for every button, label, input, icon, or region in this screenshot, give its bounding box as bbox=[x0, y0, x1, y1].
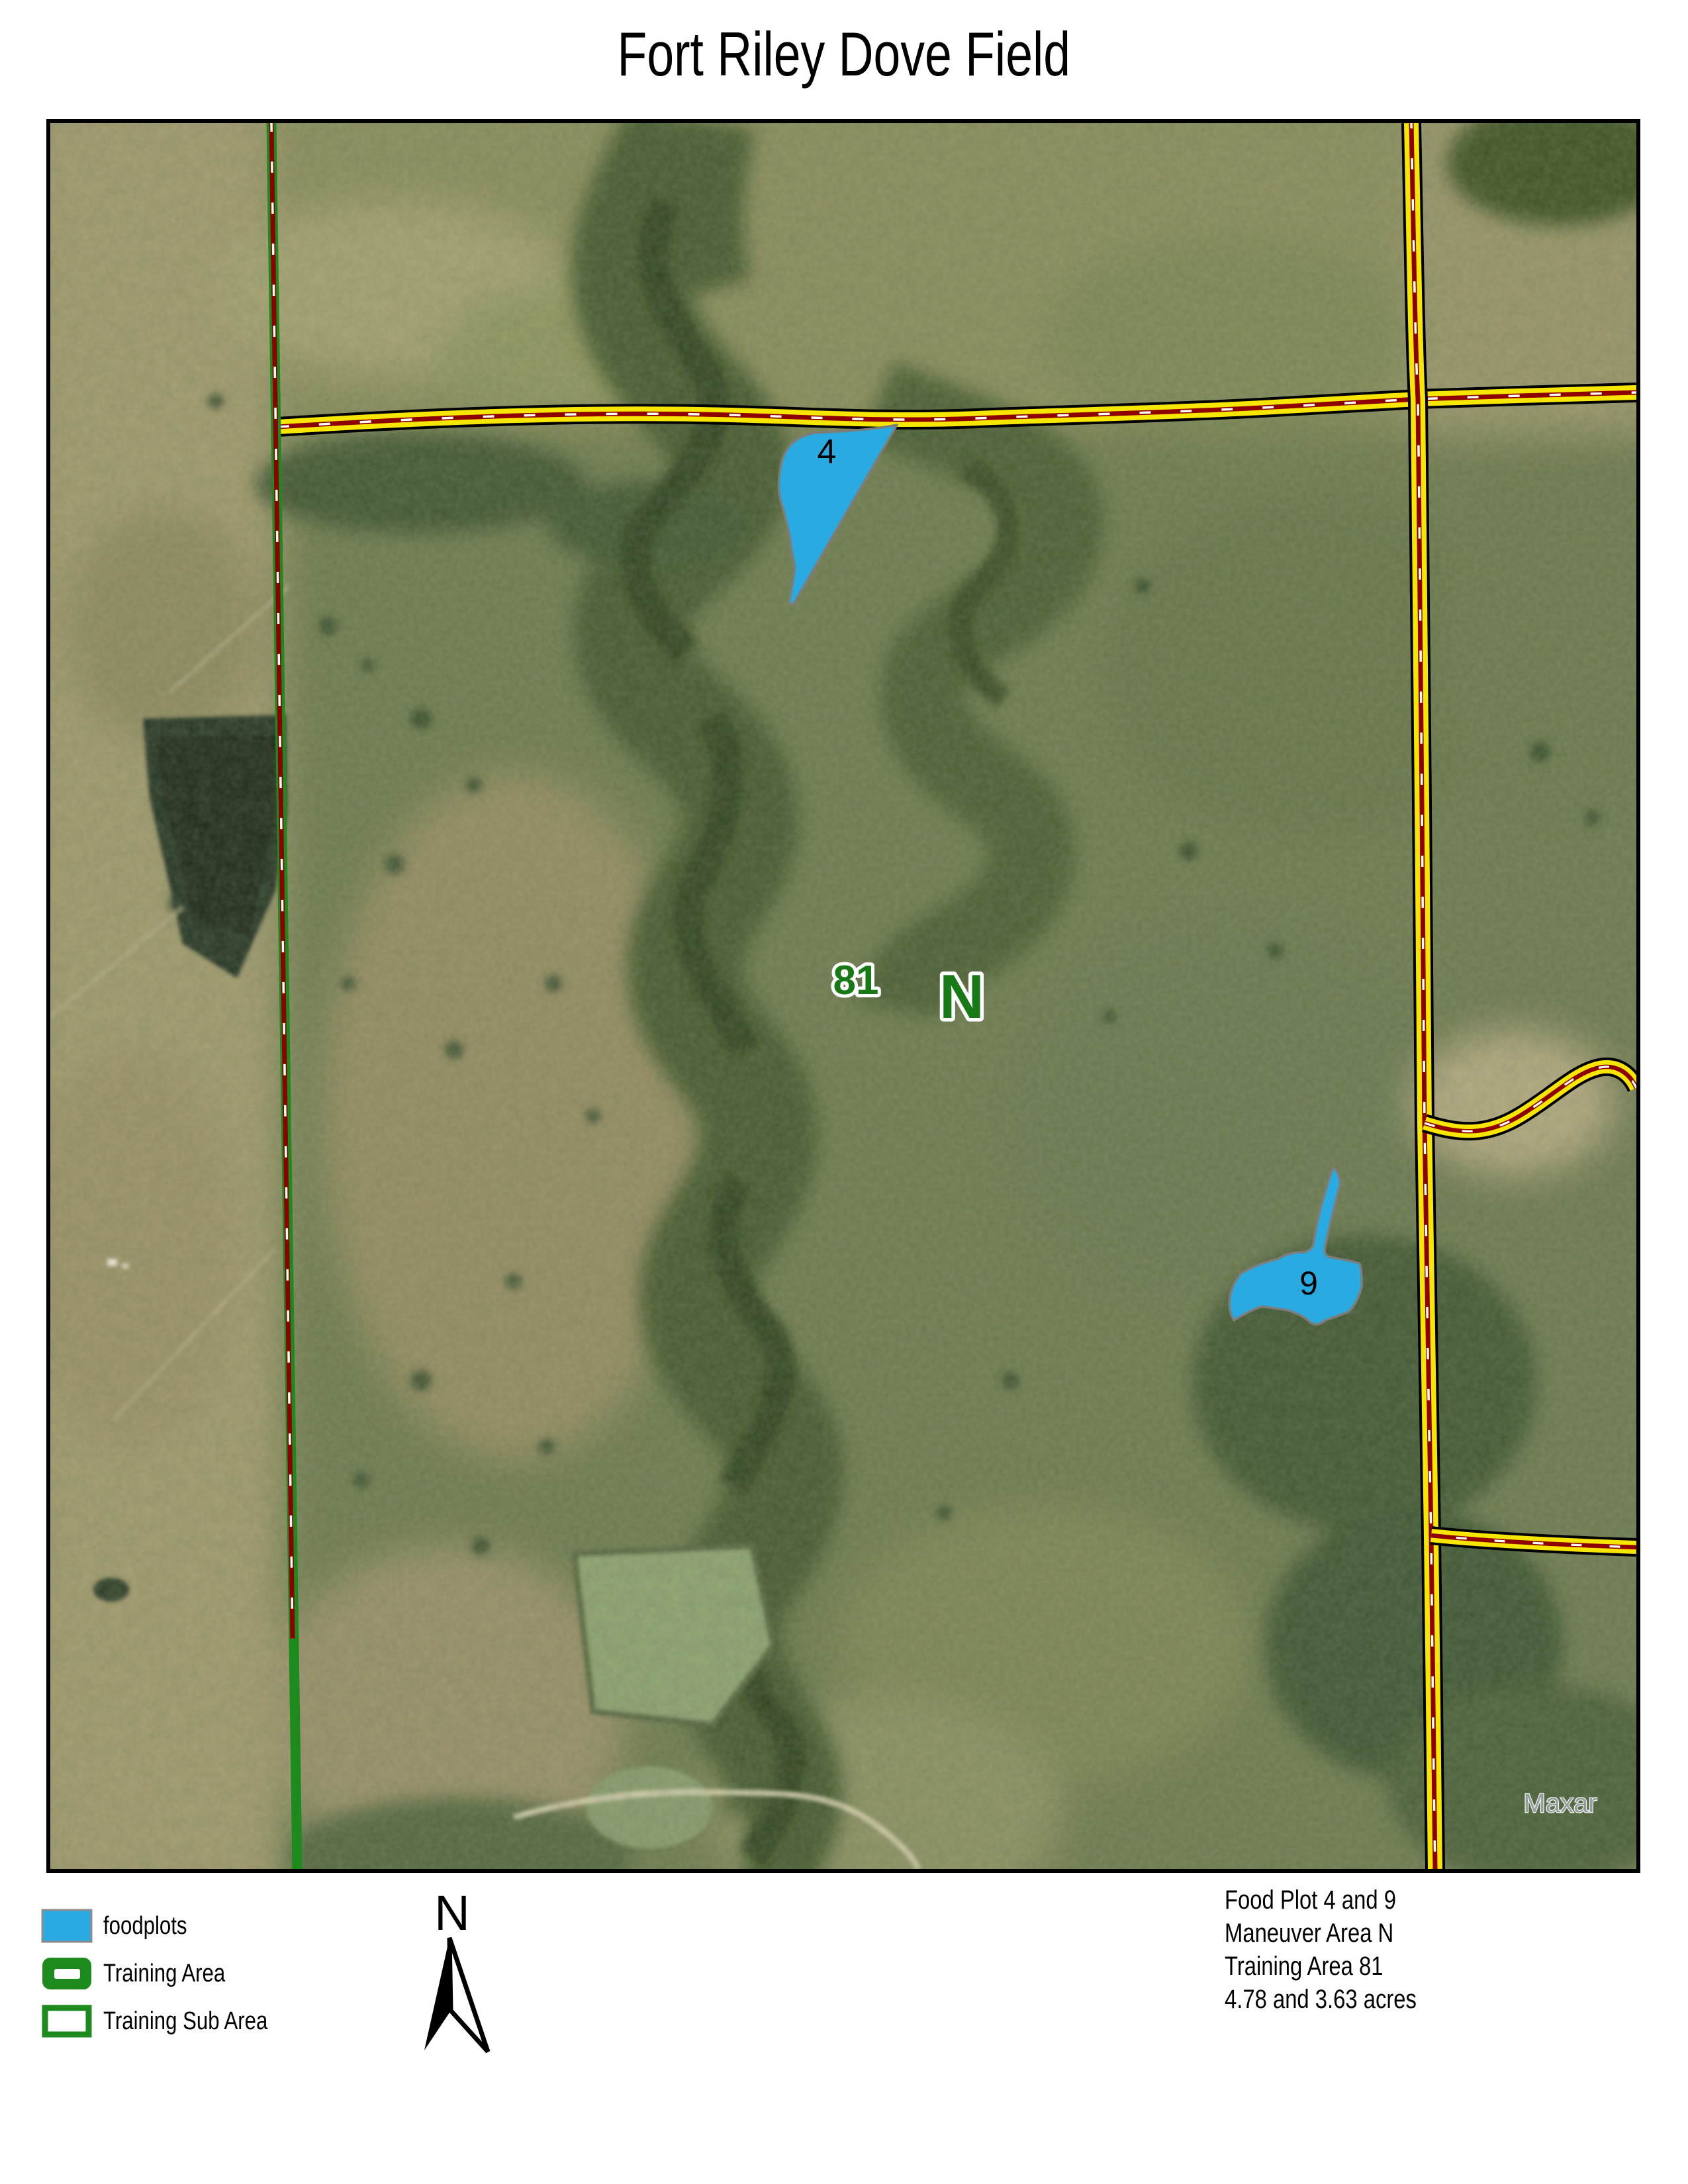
page-title: Fort Riley Dove Field bbox=[0, 19, 1688, 90]
legend-item-training-sub-area: Training Sub Area bbox=[41, 2004, 304, 2038]
north-arrow-icon: N bbox=[396, 1885, 522, 2070]
plot4-label: 4 bbox=[818, 433, 837, 471]
legend-label-foodplots: foodplots bbox=[103, 1912, 187, 1940]
road-branch-south bbox=[1431, 1535, 1636, 1547]
plot9-label: 9 bbox=[1299, 1265, 1318, 1302]
maneuver-area-n-label: N bbox=[939, 962, 984, 1031]
legend-label-training-sub-area: Training Sub Area bbox=[103, 2007, 267, 2036]
imagery-watermark: Maxar bbox=[1523, 1789, 1597, 1818]
foodplot-swatch-icon bbox=[41, 1909, 93, 1943]
annotation-line-4: 4.78 and 3.63 acres bbox=[1225, 1983, 1417, 2016]
north-arrow-label: N bbox=[434, 1886, 469, 1940]
training-sub-area-swatch-icon bbox=[41, 2004, 93, 2038]
legend-item-foodplots: foodplots bbox=[41, 1909, 205, 1943]
annotation-line-3: Training Area 81 bbox=[1225, 1950, 1383, 1983]
map-canvas: 4 9 81 N Maxar bbox=[46, 119, 1640, 1873]
legend-label-training-area: Training Area bbox=[103, 1960, 225, 1988]
map-annotation: Food Plot 4 and 9 Maneuver Area N Traini… bbox=[1225, 1884, 1459, 2016]
annotation-line-2: Maneuver Area N bbox=[1225, 1917, 1393, 1950]
north-arrow: N bbox=[396, 1885, 522, 2073]
map-sheet: Fort Riley Dove Field bbox=[0, 0, 1688, 2184]
legend-item-training-area: Training Area bbox=[41, 1956, 252, 1991]
satellite-map: 4 9 81 N Maxar bbox=[50, 123, 1636, 1869]
annotation-line-1: Food Plot 4 and 9 bbox=[1225, 1884, 1396, 1917]
training-area-swatch-icon bbox=[41, 1956, 93, 1991]
training-area-81-label: 81 bbox=[833, 958, 879, 1003]
page-title-text: Fort Riley Dove Field bbox=[618, 19, 1071, 90]
